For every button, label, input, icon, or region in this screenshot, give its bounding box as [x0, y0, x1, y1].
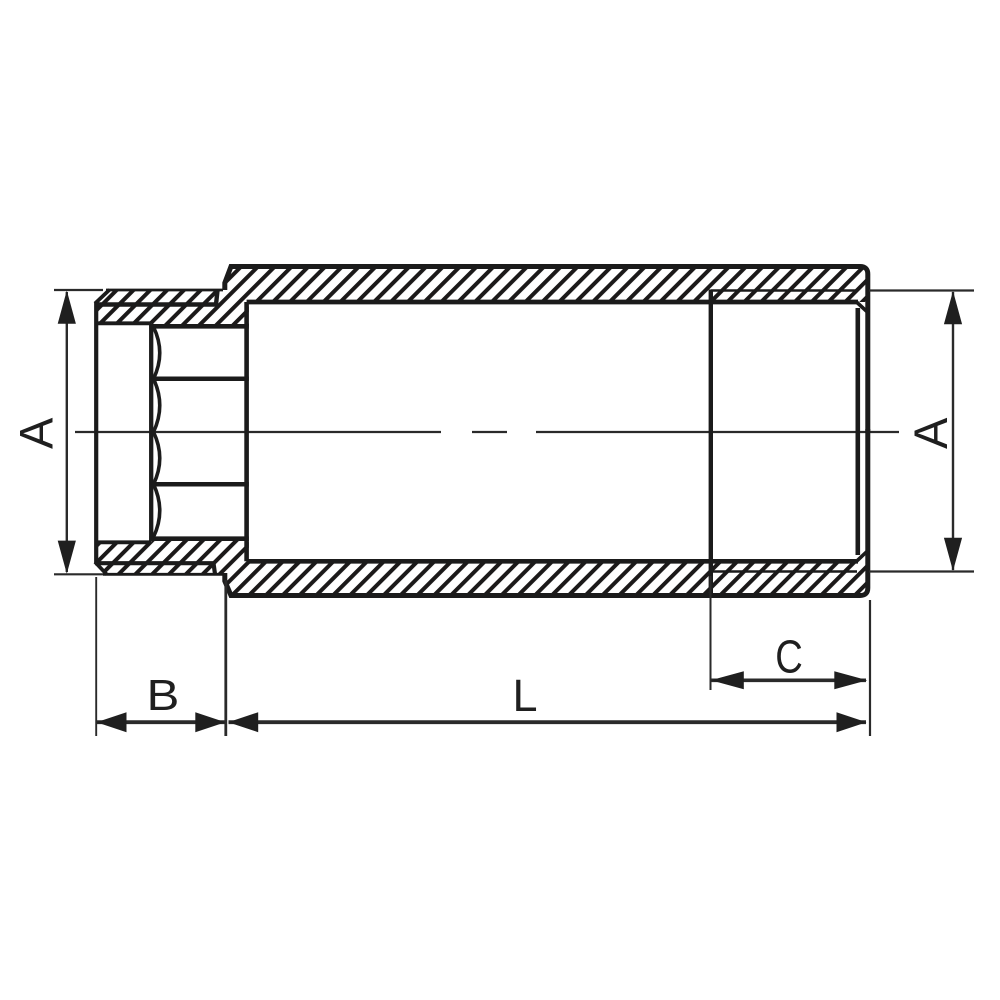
svg-text:L: L: [513, 670, 538, 721]
svg-text:A: A: [904, 417, 957, 449]
svg-text:B: B: [147, 670, 180, 719]
svg-text:A: A: [10, 417, 63, 449]
svg-text:C: C: [775, 631, 803, 682]
